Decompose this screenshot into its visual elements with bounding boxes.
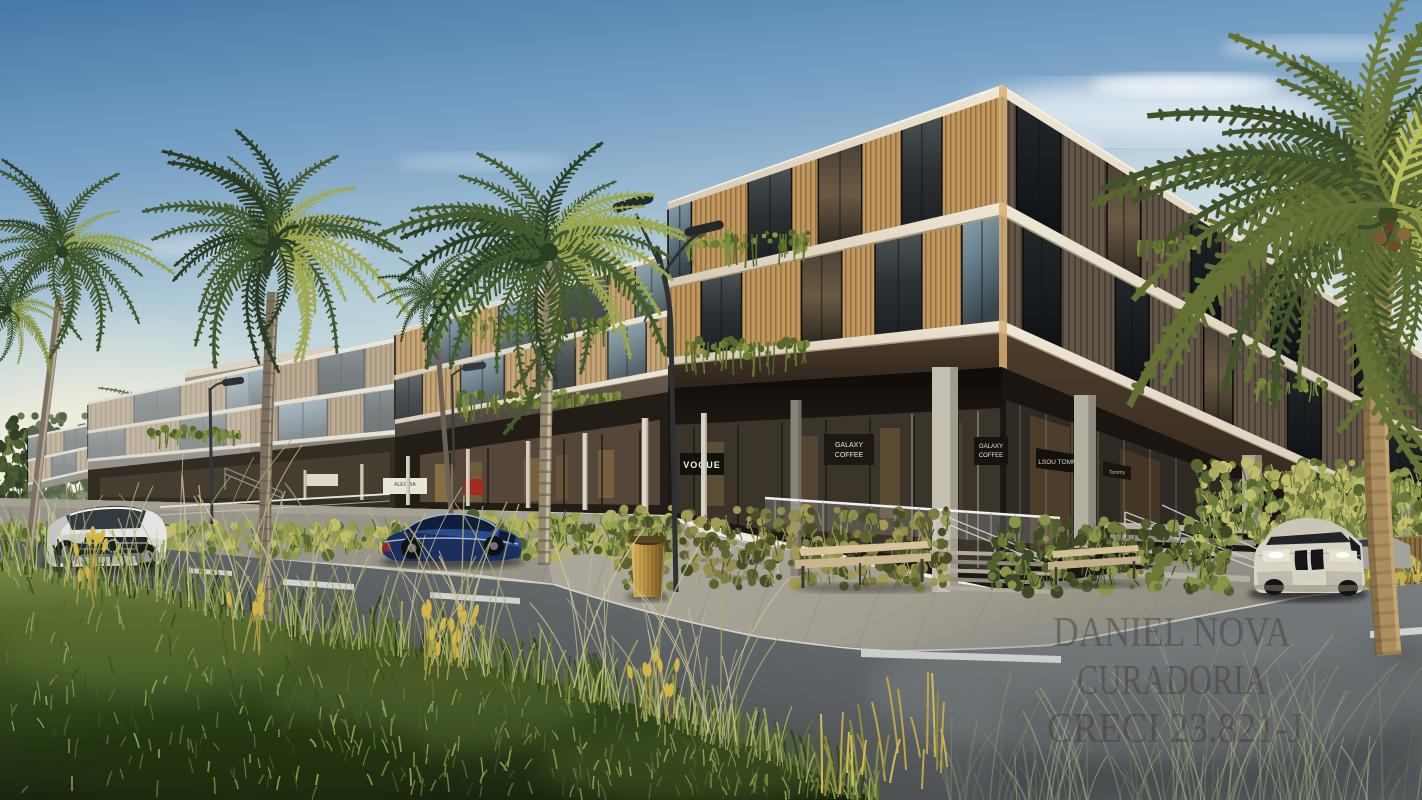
- svg-text:GALAXY: GALAXY: [979, 444, 1003, 450]
- svg-text:ALEGRIA: ALEGRIA: [394, 482, 416, 488]
- svg-text:GALAXY: GALAXY: [835, 442, 863, 449]
- svg-text:CRECI 23.821-J: CRECI 23.821-J: [1047, 706, 1303, 752]
- svg-text:COFFEE: COFFEE: [979, 453, 1003, 459]
- svg-text:COFFEE: COFFEE: [835, 452, 864, 459]
- svg-text:Tommy: Tommy: [1109, 470, 1126, 476]
- svg-text:DANIEL NOVA: DANIEL NOVA: [1053, 610, 1292, 656]
- svg-text:CURADORIA: CURADORIA: [1077, 658, 1268, 704]
